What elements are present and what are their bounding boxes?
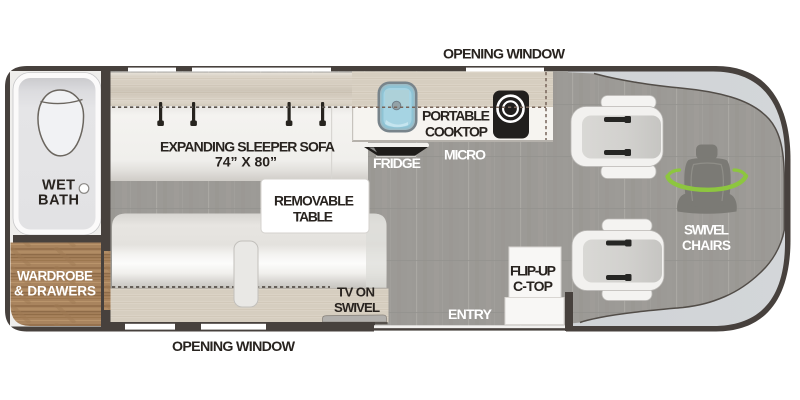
svg-text:SWIVEL: SWIVEL (334, 300, 380, 315)
svg-text:ENTRY: ENTRY (448, 306, 493, 322)
svg-text:OPENING WINDOW: OPENING WINDOW (172, 339, 296, 355)
svg-text:TABLE: TABLE (293, 210, 333, 225)
svg-text:74” X 80”: 74” X 80” (215, 154, 277, 170)
svg-text:BATH: BATH (38, 193, 79, 209)
svg-text:WARDROBE: WARDROBE (17, 269, 93, 284)
svg-text:WET: WET (42, 178, 75, 194)
svg-text:CHAIRS: CHAIRS (682, 238, 731, 253)
svg-text:PORTABLE: PORTABLE (422, 108, 490, 124)
svg-text:REMOVABLE: REMOVABLE (274, 194, 354, 209)
svg-text:OPENING WINDOW: OPENING WINDOW (443, 47, 566, 63)
svg-text:COOKTOP: COOKTOP (425, 124, 488, 140)
svg-text:FLIP-UP: FLIP-UP (510, 263, 556, 279)
svg-text:C-TOP: C-TOP (513, 278, 553, 294)
svg-text:SWIVEL: SWIVEL (684, 223, 729, 238)
svg-text:TV ON: TV ON (337, 285, 375, 300)
svg-text:FRIDGE: FRIDGE (373, 155, 421, 171)
svg-text:MICRO: MICRO (444, 147, 486, 163)
svg-text:& DRAWERS: & DRAWERS (14, 284, 96, 299)
svg-text:EXPANDING SLEEPER SOFA: EXPANDING SLEEPER SOFA (160, 139, 335, 155)
